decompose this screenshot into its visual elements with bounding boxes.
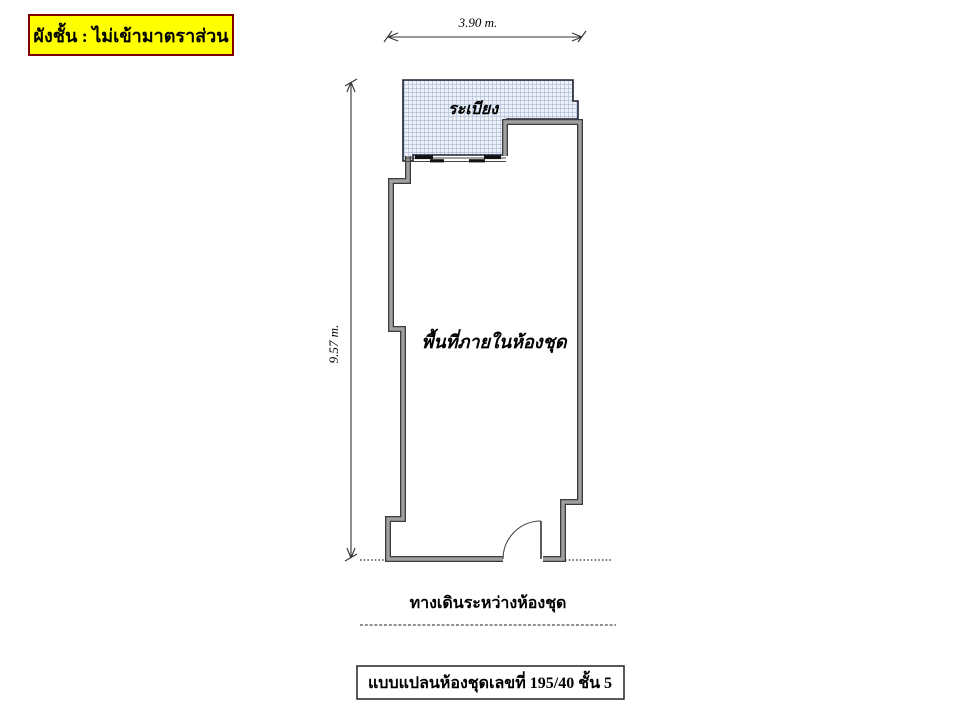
height-dimension-label: 9.57 m.	[326, 325, 341, 364]
floor-plan-drawing: 3.90 m. 9.57 m. ระเบียง	[0, 0, 960, 720]
room-label: พื้นที่ภายในห้องชุด	[421, 328, 567, 354]
balcony-label: ระเบียง	[448, 100, 499, 118]
height-dimension: 9.57 m.	[326, 79, 357, 561]
balcony-sliding-door	[406, 156, 506, 163]
door-track-bar	[415, 156, 433, 160]
door-track-bar	[430, 159, 444, 162]
entrance-door	[503, 521, 541, 559]
door-track-bar	[484, 156, 501, 160]
width-dimension-label: 3.90 m.	[458, 15, 498, 30]
floor-plan-page: ผังชั้น : ไม่เข้ามาตราส่วน 3.90 m.	[0, 0, 960, 720]
door-swing-arc	[503, 521, 541, 559]
width-dimension: 3.90 m.	[384, 15, 586, 42]
plan-title-box: แบบแปลนห้องชุดเลขที่ 195/40 ชั้น 5	[357, 666, 624, 699]
corridor-label: ทางเดินระหว่างห้องชุด	[410, 594, 567, 613]
corridor-annotation: ทางเดินระหว่างห้องชุด	[360, 594, 616, 625]
door-track-bar	[469, 159, 485, 162]
